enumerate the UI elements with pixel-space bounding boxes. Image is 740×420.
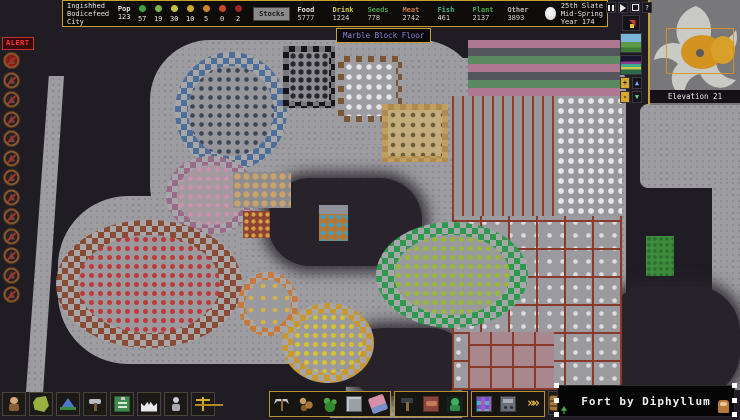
combat-alert-icon[interactable] xyxy=(3,228,20,245)
labor-alert-icon[interactable] xyxy=(3,286,20,303)
mixed-goods-stockpile[interactable] xyxy=(468,40,620,96)
chop-button[interactable] xyxy=(295,393,317,415)
stress-face-column: 0 xyxy=(214,5,230,23)
smooth-button[interactable] xyxy=(343,393,365,415)
red-circle-stockpile-floor xyxy=(78,235,219,332)
resource-other: Other3893 xyxy=(507,6,540,22)
toolbar-group xyxy=(394,391,468,417)
resource-meat: Meat2742 xyxy=(402,6,435,22)
stress-face-column: 10 xyxy=(182,5,198,23)
green-circle-stockpile[interactable] xyxy=(376,222,528,328)
armor-alert-icon[interactable] xyxy=(3,247,20,264)
resource-food: Food5777 xyxy=(297,6,330,22)
fort-name-overlay[interactable]: Fort by Diphyllum xyxy=(557,385,735,417)
gather-button[interactable] xyxy=(319,393,341,415)
toolbar-group xyxy=(269,391,391,417)
plant-icon xyxy=(322,396,338,412)
military-alert-icon[interactable] xyxy=(3,130,20,147)
z-up-button[interactable]: ▲ xyxy=(632,77,642,89)
date-display: 25th Slate Mid-Spring Year 174 xyxy=(561,2,603,26)
action-toolbar xyxy=(269,391,566,417)
grate-alert-icon[interactable] xyxy=(3,150,20,167)
stress-face-column: 5 xyxy=(198,5,214,23)
population-summary: Pop12357193010502 xyxy=(114,5,246,23)
fort-name: Ingishhed Bodicefeed City xyxy=(67,2,109,26)
work-orders-button[interactable] xyxy=(110,392,134,416)
erase-button[interactable] xyxy=(367,393,389,415)
tasks-icon xyxy=(33,396,49,412)
resource-plant: Plant2137 xyxy=(472,6,505,22)
build-icon xyxy=(399,396,415,412)
surface-view-button[interactable] xyxy=(620,33,642,53)
more-options-button[interactable] xyxy=(521,393,543,415)
play-button[interactable] xyxy=(618,2,628,13)
zoom-out-button[interactable]: - xyxy=(620,91,630,103)
zoom-in-button[interactable]: + xyxy=(620,77,630,89)
stocks-button[interactable]: Stocks xyxy=(253,7,290,21)
minimap-viewport-rect xyxy=(666,28,734,74)
fort-overlay-text: Fort by Diphyllum xyxy=(581,395,711,408)
stop-button[interactable] xyxy=(630,2,640,13)
floor-area xyxy=(640,104,740,188)
corridor xyxy=(26,76,64,392)
objects-button[interactable] xyxy=(164,392,188,416)
info-toolbar xyxy=(2,392,215,416)
build-button[interactable] xyxy=(396,393,418,415)
trade-alert-icon[interactable] xyxy=(3,208,20,225)
hauling-button[interactable] xyxy=(497,393,519,415)
cavern-view-button[interactable] xyxy=(620,55,642,75)
mining-alert-icon[interactable] xyxy=(3,91,20,108)
bedroom-suite-floor xyxy=(388,110,442,156)
justice-button[interactable] xyxy=(191,392,215,416)
stockpiles-button[interactable] xyxy=(473,393,495,415)
orders-icon xyxy=(114,396,130,412)
stockpile-icon xyxy=(476,396,492,412)
resource-fish: Fish461 xyxy=(437,6,470,22)
sprout-icon xyxy=(561,406,567,414)
red-circle-stockpile[interactable] xyxy=(56,220,242,348)
records-alert-icon[interactable] xyxy=(3,111,20,128)
trade-depot[interactable] xyxy=(319,205,348,241)
objects-icon xyxy=(168,396,184,412)
resource-seeds: Seeds778 xyxy=(367,6,400,22)
selection-handle[interactable] xyxy=(554,412,559,417)
toolbar-group xyxy=(471,391,545,417)
nobles-icon xyxy=(141,400,157,412)
game-screen: Ingishhed Bodicefeed City Pop12357193010… xyxy=(0,0,740,420)
selection-handle[interactable] xyxy=(554,398,559,403)
zones-button[interactable] xyxy=(420,393,442,415)
resource-summary: Food5777Drink1224Seeds778Meat2742Fish461… xyxy=(297,6,540,22)
pause-button[interactable] xyxy=(606,2,616,13)
tile-tooltip: Marble Block Floor xyxy=(336,28,431,43)
status-bar: Ingishhed Bodicefeed City Pop12357193010… xyxy=(62,0,608,27)
smooth-icon xyxy=(346,396,362,412)
minimap[interactable]: Elevation 21 xyxy=(648,0,740,105)
haul-icon xyxy=(500,396,516,412)
pop-count: Pop123 xyxy=(114,5,134,23)
bag-stockpile[interactable] xyxy=(556,96,622,216)
no-work-alert-icon[interactable] xyxy=(3,72,20,89)
labor-icon xyxy=(87,396,103,412)
grass-patch[interactable] xyxy=(646,236,674,276)
green-circle-stockpile-floor xyxy=(394,235,510,316)
dig-alert-icon[interactable] xyxy=(3,169,20,186)
tomb-room-floor xyxy=(289,52,329,102)
orange-circle-stockpile-floor xyxy=(245,280,291,329)
craft-workshop[interactable] xyxy=(243,211,270,238)
blue-circle-stockpile-floor xyxy=(188,66,273,156)
justice-icon xyxy=(195,396,211,412)
blue-circle-stockpile[interactable] xyxy=(175,52,287,170)
unexplored-area xyxy=(604,286,740,398)
stress-face-column: 2 xyxy=(230,5,246,23)
stress-face-column: 30 xyxy=(166,5,182,23)
places-icon xyxy=(60,396,76,412)
selection-handle[interactable] xyxy=(732,383,737,388)
erase-icon xyxy=(368,394,389,415)
danger-alert-icon[interactable] xyxy=(3,52,20,69)
gold-circle-stockpile[interactable] xyxy=(282,303,374,383)
pink-room[interactable] xyxy=(468,332,554,390)
citizens-button[interactable] xyxy=(2,392,26,416)
death-alert-icon[interactable] xyxy=(3,267,20,284)
labor-button[interactable] xyxy=(83,392,107,416)
dig-button[interactable] xyxy=(271,393,293,415)
places-button[interactable] xyxy=(56,392,80,416)
more-icon xyxy=(524,396,540,412)
resource-drink: Drink1224 xyxy=(332,6,365,22)
elevation-label: Elevation 21 xyxy=(650,90,740,103)
recenter-button[interactable] xyxy=(622,15,640,31)
selection-handle[interactable] xyxy=(554,383,559,388)
stress-face-column: 19 xyxy=(150,5,166,23)
tasks-button[interactable] xyxy=(29,392,53,416)
selection-handle[interactable] xyxy=(732,398,737,403)
dwarf-sprite xyxy=(718,400,729,413)
tomb-room[interactable] xyxy=(283,46,335,108)
stress-face-column: 57 xyxy=(134,5,150,23)
z-down-button[interactable]: ▼ xyxy=(632,91,642,103)
selection-handle[interactable] xyxy=(732,412,737,417)
gold-circle-stockpile-floor xyxy=(293,313,363,374)
moon-icon xyxy=(545,7,555,20)
burrows-button[interactable] xyxy=(444,393,466,415)
farm-plot-rows[interactable] xyxy=(452,96,556,216)
bedroom-suite[interactable] xyxy=(382,104,448,162)
barrel-stockpile[interactable] xyxy=(233,172,291,208)
blood-alert-icon[interactable] xyxy=(3,189,20,206)
citizens-icon xyxy=(6,396,22,412)
help-button[interactable]: ? xyxy=(642,2,652,13)
pick-icon xyxy=(274,396,290,412)
alert-badge[interactable]: ALERT xyxy=(2,37,34,50)
burrow-icon xyxy=(447,396,463,412)
wood-icon xyxy=(298,396,314,412)
nobles-button[interactable] xyxy=(137,392,161,416)
zone-icon xyxy=(423,396,439,412)
